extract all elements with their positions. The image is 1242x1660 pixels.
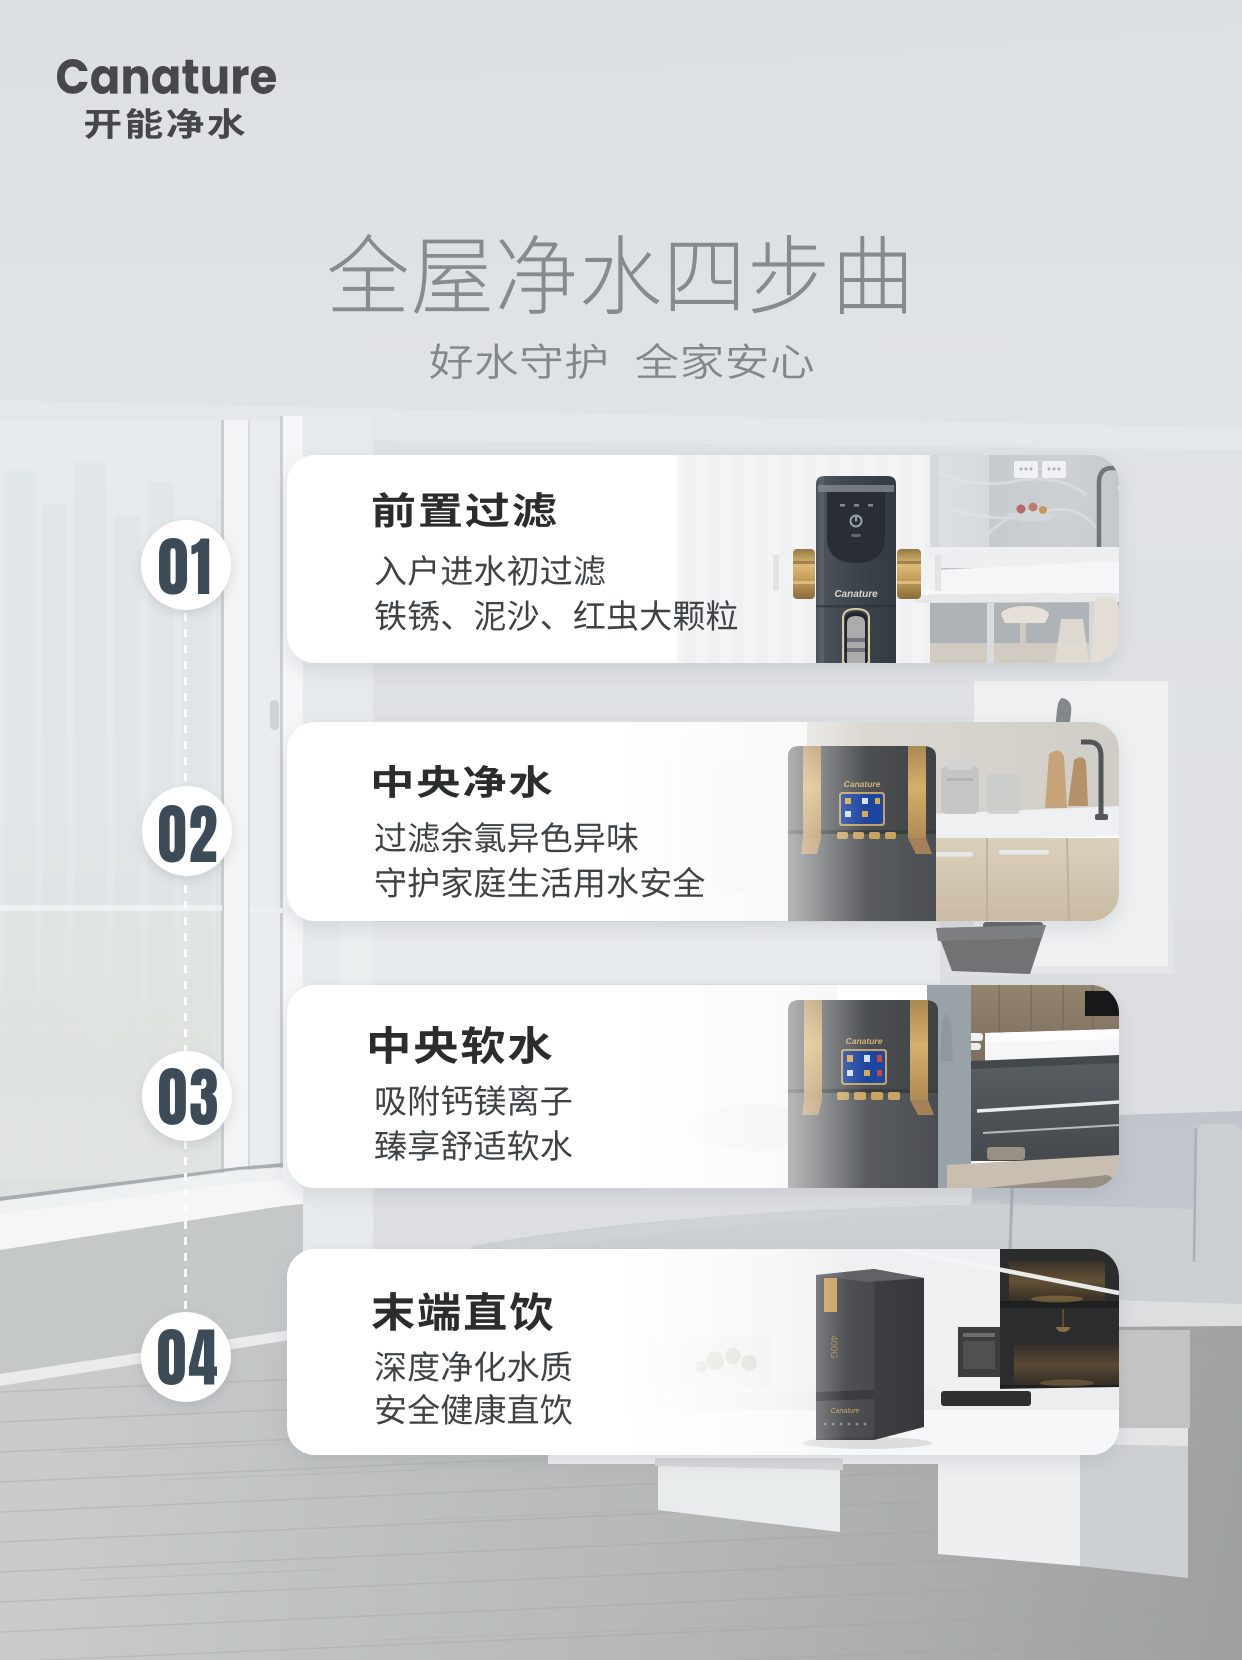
svg-text:Canature: Canature — [834, 589, 878, 600]
